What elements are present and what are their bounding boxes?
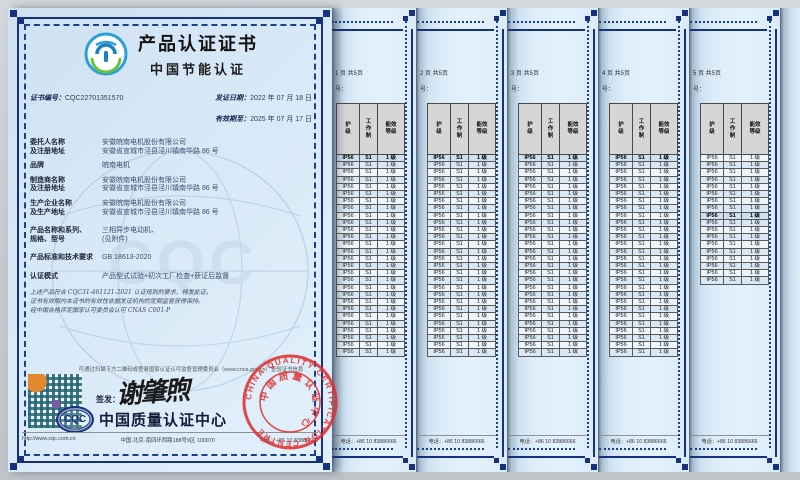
table-cell: S1 [451, 241, 469, 248]
table-row: IP56S11 级 [428, 284, 496, 291]
table-body: IP56S11 级IP56S11 级IP56S11 级IP56S11 级IP56… [519, 155, 587, 357]
corner-square-ornament [676, 458, 681, 463]
table-cell: 1 级 [651, 248, 678, 255]
table-cell: IP56 [428, 306, 451, 313]
table-row: IP56S11 级 [610, 327, 678, 334]
dashed-border-ornament [690, 21, 757, 23]
table-cell: S1 [451, 176, 469, 183]
attachment-page-sliver: 5 页 共5页 号： 护 级 工 作 制 能效 等级 IP56S11 级IP56… [690, 8, 781, 472]
corner-square-ornament [773, 464, 779, 470]
table-row: IP56S11 级 [610, 313, 678, 320]
table-row: IP56S11 级 [337, 342, 405, 349]
corner-square-ornament [19, 456, 24, 461]
table-row: IP56S11 级 [610, 349, 678, 356]
table-cell: S1 [542, 306, 560, 313]
field-value: 安徽皖南电机股份有限公司安徽省宣城市泾县泾川镇南华路 86 号 [102, 177, 219, 194]
table-row: IP56S11 级 [610, 205, 678, 212]
table-cell: IP56 [701, 155, 724, 162]
table-cell: 1 级 [378, 263, 405, 270]
table-row: IP56S11 级 [337, 219, 405, 226]
table-cell: 1 级 [560, 227, 587, 234]
attachment-table: 护 级 工 作 制 能效 等级 IP56S11 级IP56S11 级IP56S1… [427, 103, 496, 357]
table-cell: IP56 [701, 234, 724, 241]
table-row: IP56S11 级 [519, 205, 587, 212]
table-row: IP56S11 级 [337, 320, 405, 327]
table-cell: IP56 [428, 335, 451, 342]
corner-square-ornament [409, 10, 415, 16]
table-row: IP56S11 级 [701, 248, 769, 255]
table-cell: S1 [360, 335, 378, 342]
solid-border-ornament [502, 29, 504, 457]
table-cell: IP56 [610, 284, 633, 291]
solid-border-ornament [599, 29, 676, 31]
table-cell: S1 [451, 277, 469, 284]
corner-square-ornament [409, 464, 415, 470]
table-cell: 1 级 [560, 198, 587, 205]
table-row: IP56S11 级 [337, 255, 405, 262]
field-value: 安徽皖南电机股份有限公司安徽省宣城市泾县泾川镇南华路 86 号 [102, 200, 219, 217]
dashed-border-ornament [508, 21, 575, 23]
table-cell: IP56 [701, 270, 724, 277]
table-cell: S1 [724, 169, 742, 176]
corner-square-ornament [323, 10, 330, 17]
table-cell: 1 级 [651, 320, 678, 327]
table-cell: S1 [451, 169, 469, 176]
table-header-efficiency: 能效 等级 [560, 104, 587, 155]
corner-square-ornament [494, 16, 499, 21]
table-cell: S1 [360, 248, 378, 255]
table-cell: 1 级 [560, 306, 587, 313]
table-cell: IP56 [610, 335, 633, 342]
table-row: IP56S11 级 [337, 270, 405, 277]
table-cell: IP56 [428, 270, 451, 277]
table-cell: S1 [633, 169, 651, 176]
table-row: IP56S11 级 [428, 183, 496, 190]
table-cell: S1 [360, 342, 378, 349]
table-row: IP56S11 级 [337, 198, 405, 205]
table-row: IP56S11 级 [337, 306, 405, 313]
attachment-certno-fragment: 号： [602, 84, 630, 93]
table-cell: IP56 [337, 248, 360, 255]
table-row: IP56S11 级 [610, 227, 678, 234]
table-cell: 1 级 [560, 162, 587, 169]
table-cell: IP56 [519, 176, 542, 183]
table-cell: IP56 [428, 320, 451, 327]
table-cell: IP56 [337, 219, 360, 226]
table-cell: IP56 [428, 291, 451, 298]
corner-square-ornament [767, 16, 772, 21]
table-cell: 1 级 [378, 155, 405, 162]
table-header-efficiency: 能效 等级 [378, 104, 405, 155]
table-row: IP56S11 级 [337, 335, 405, 342]
table-cell: 1 级 [560, 241, 587, 248]
corner-square-ornament [585, 458, 590, 463]
solid-border-ornament [690, 456, 767, 458]
table-row: IP56S11 级 [519, 291, 587, 298]
valid-until-label: 有效期至： [215, 114, 250, 123]
table-row: IP56S11 级 [428, 205, 496, 212]
dashed-border-ornament [587, 21, 589, 448]
table-cell: 1 级 [560, 219, 587, 226]
table-cell: IP56 [701, 255, 724, 262]
table-cell: S1 [542, 155, 560, 162]
table-cell: 1 级 [378, 227, 405, 234]
table-cell: S1 [360, 176, 378, 183]
table-cell: S1 [633, 320, 651, 327]
table-cell: S1 [451, 205, 469, 212]
table-cell: IP56 [610, 219, 633, 226]
corner-square-ornament [591, 464, 597, 470]
field-label: 品牌 [30, 162, 102, 171]
table-cell: S1 [633, 191, 651, 198]
table-cell: IP56 [519, 263, 542, 270]
table-cell: 1 级 [378, 342, 405, 349]
footer-address: 中国·北京·南四环西路188号9区 100070 [120, 436, 214, 444]
table-cell: IP56 [610, 183, 633, 190]
table-cell: S1 [633, 234, 651, 241]
solid-border-ornament [332, 456, 403, 458]
table-cell: IP56 [701, 198, 724, 205]
attachment-page-header: 5 页 共5页 号： [693, 68, 721, 93]
table-cell: 1 级 [469, 284, 496, 291]
table-row: IP56S11 级 [701, 234, 769, 241]
table-cell: S1 [360, 198, 378, 205]
table-cell: IP56 [610, 277, 633, 284]
table-cell: 1 级 [469, 306, 496, 313]
solid-border-ornament [690, 29, 767, 31]
table-cell: S1 [724, 234, 742, 241]
table-cell: S1 [542, 219, 560, 226]
table-cell: IP56 [337, 313, 360, 320]
attachment-footer-phone: 电话：+86 10 83886666 [508, 438, 587, 445]
table-cell: S1 [542, 284, 560, 291]
table-cell: 1 级 [651, 198, 678, 205]
attachment-page-header: 3 页 共5页 号： [511, 68, 539, 93]
table-row: IP56S11 级 [519, 255, 587, 262]
table-cell: IP56 [337, 241, 360, 248]
table-header-protection: 护 级 [519, 104, 542, 155]
table-cell: 1 级 [651, 327, 678, 334]
table-cell: 1 级 [560, 176, 587, 183]
table-cell: IP56 [428, 155, 451, 162]
table-row: IP56S11 级 [428, 255, 496, 262]
table-header-duty: 工 作 制 [724, 104, 742, 155]
table-cell: S1 [542, 291, 560, 298]
table-cell: IP56 [701, 191, 724, 198]
table-cell: IP56 [610, 349, 633, 356]
partial-page-edge [781, 8, 800, 472]
table-cell: 1 级 [651, 291, 678, 298]
certificate-page: CQC 产品认证证书 中国节能认证 证书编号：CQC22701 [8, 8, 332, 472]
table-cell: IP56 [610, 241, 633, 248]
table-cell: IP56 [337, 270, 360, 277]
statement-line: 上述产品符合 CQC31-461121-2021 认证规则的要求，特发此证。 [30, 288, 312, 297]
table-cell: IP56 [337, 327, 360, 334]
table-cell: S1 [633, 349, 651, 356]
table-cell: S1 [451, 327, 469, 334]
table-row: IP56S11 级 [337, 284, 405, 291]
table-cell: S1 [542, 191, 560, 198]
table-cell: 1 级 [469, 234, 496, 241]
corner-square-ornament [591, 10, 597, 16]
attachment-footer: 电话：+86 10 83886666 [332, 435, 405, 445]
table-cell: 1 级 [742, 219, 769, 226]
table-cell: S1 [542, 277, 560, 284]
table-cell: 1 级 [469, 248, 496, 255]
table-cell: IP56 [610, 306, 633, 313]
corner-square-ornament [494, 458, 499, 463]
table-header-protection: 护 级 [337, 104, 360, 155]
table-cell: 1 级 [378, 219, 405, 226]
table-row: IP56S11 级 [519, 299, 587, 306]
issue-date-value: 2022 年 07 月 18 日 [250, 95, 312, 102]
table-cell: IP56 [610, 291, 633, 298]
table-cell: 1 级 [742, 205, 769, 212]
table-cell: 1 级 [378, 162, 405, 169]
table-cell: IP56 [428, 313, 451, 320]
table-cell: S1 [451, 212, 469, 219]
table-cell: IP56 [610, 255, 633, 262]
table-cell: IP56 [428, 299, 451, 306]
table-cell: 1 级 [560, 327, 587, 334]
table-row: IP56S11 级 [519, 320, 587, 327]
attachment-footer-phone: 电话：+86 10 83886666 [417, 438, 496, 445]
statement-line: 经中国合格评定国家认可委员会认可 CNAS C001-P [30, 306, 312, 315]
table-cell: S1 [360, 234, 378, 241]
table-row: IP56S11 级 [337, 155, 405, 162]
table-cell: S1 [360, 241, 378, 248]
table-row: IP56S11 级 [610, 335, 678, 342]
field-value: 产品型式试验+初次工厂检查+获证后监督 [102, 273, 229, 282]
table-cell: S1 [724, 270, 742, 277]
table-cell: 1 级 [651, 241, 678, 248]
table-cell: 1 级 [651, 313, 678, 320]
table-cell: S1 [633, 335, 651, 342]
table-cell: IP56 [519, 299, 542, 306]
table-cell: IP56 [337, 342, 360, 349]
table-row: IP56S11 级 [337, 234, 405, 241]
table-cell: IP56 [519, 284, 542, 291]
table-cell: S1 [542, 320, 560, 327]
table-cell: S1 [633, 176, 651, 183]
dashed-border-ornament [678, 21, 680, 448]
table-cell: IP56 [519, 205, 542, 212]
table-cell: 1 级 [469, 291, 496, 298]
table-cell: S1 [360, 327, 378, 334]
table-row: IP56S11 级 [519, 176, 587, 183]
table-cell: 1 级 [378, 299, 405, 306]
table-row: IP56S11 级 [701, 191, 769, 198]
field-row: 认证模式 产品型式试验+初次工厂检查+获证后监督 [30, 273, 312, 282]
field-value: 皖南电机 [102, 162, 130, 171]
table-row: IP56S11 级 [519, 155, 587, 162]
table-cell: IP56 [610, 162, 633, 169]
table-cell: 1 级 [742, 270, 769, 277]
field-label: 委托人名称及注册地址 [30, 139, 102, 156]
table-row: IP56S11 级 [610, 241, 678, 248]
table-cell: IP56 [519, 291, 542, 298]
table-row: IP56S11 级 [337, 227, 405, 234]
table-row: IP56S11 级 [701, 227, 769, 234]
table-cell: S1 [542, 198, 560, 205]
table-cell: 1 级 [378, 306, 405, 313]
attachment-page-sliver: 1 页 共5页 号： 护 级 工 作 制 能效 等级 IP56S11 级IP56… [332, 8, 417, 472]
table-row: IP56S11 级 [610, 155, 678, 162]
table-row: IP56S11 级 [610, 176, 678, 183]
solid-border-ornament [417, 456, 494, 458]
table-cell: 1 级 [469, 277, 496, 284]
table-cell: S1 [451, 183, 469, 190]
table-cell: IP56 [701, 212, 724, 219]
table-cell: S1 [542, 342, 560, 349]
table-row: IP56S11 级 [519, 227, 587, 234]
field-row: 委托人名称及注册地址 安徽皖南电机股份有限公司安徽省宣城市泾县泾川镇南华路 86… [30, 139, 312, 156]
table-row: IP56S11 级 [519, 263, 587, 270]
table-cell: IP56 [337, 291, 360, 298]
table-cell: S1 [724, 227, 742, 234]
table-row: IP56S11 级 [428, 162, 496, 169]
table-row: IP56S11 级 [428, 277, 496, 284]
attachment-page-number: 2 页 共5页 [420, 68, 448, 77]
certificate-subtitle: 中国节能认证 [138, 59, 258, 78]
table-row: IP56S11 级 [337, 327, 405, 334]
table-cell: S1 [360, 219, 378, 226]
table-cell: S1 [724, 212, 742, 219]
table-cell: 1 级 [651, 212, 678, 219]
corner-square-ornament [10, 463, 17, 470]
corner-square-ornament [767, 458, 772, 463]
corner-square-ornament [323, 463, 330, 470]
table-row: IP56S11 级 [428, 327, 496, 334]
table-cell: 1 级 [469, 162, 496, 169]
table-cell: IP56 [519, 270, 542, 277]
table-cell: S1 [724, 198, 742, 205]
table-cell: 1 级 [742, 198, 769, 205]
table-cell: IP56 [428, 342, 451, 349]
table-cell: IP56 [519, 327, 542, 334]
table-row: IP56S11 级 [519, 327, 587, 334]
table-cell: IP56 [519, 320, 542, 327]
table-cell: IP56 [519, 234, 542, 241]
dashed-border-ornament [332, 21, 393, 23]
table-cell: S1 [451, 349, 469, 356]
table-row: IP56S11 级 [519, 241, 587, 248]
table-row: IP56S11 级 [428, 155, 496, 162]
attachment-page-sliver: 3 页 共5页 号： 护 级 工 作 制 能效 等级 IP56S11 级IP56… [508, 8, 599, 472]
table-cell: S1 [633, 291, 651, 298]
table-cell: S1 [451, 162, 469, 169]
corner-square-ornament [19, 19, 24, 24]
table-row: IP56S11 级 [610, 306, 678, 313]
table-row: IP56S11 级 [337, 183, 405, 190]
table-cell: IP56 [610, 234, 633, 241]
table-row: IP56S11 级 [610, 183, 678, 190]
field-label: 产品名称和系列、规格、型号 [30, 227, 102, 244]
table-cell: 1 级 [651, 270, 678, 277]
table-cell: S1 [633, 284, 651, 291]
attachment-footer: 电话：+86 10 83886666 [417, 435, 496, 445]
attachment-footer: 电话：+86 10 83886666 [690, 435, 769, 445]
table-cell: S1 [360, 205, 378, 212]
field-row: 制造商名称及注册地址 安徽皖南电机股份有限公司安徽省宣城市泾县泾川镇南华路 86… [30, 177, 312, 194]
table-row: IP56S11 级 [428, 349, 496, 356]
table-row: IP56S11 级 [428, 169, 496, 176]
cqc-logo-icon: CQC [56, 406, 94, 433]
table-cell: 1 级 [378, 212, 405, 219]
table-body: IP56S11 级IP56S11 级IP56S11 级IP56S11 级IP56… [337, 155, 405, 357]
certificate-titles: 产品认证证书 中国节能认证 [138, 30, 258, 78]
table-row: IP56S11 级 [610, 291, 678, 298]
table-cell: S1 [451, 291, 469, 298]
table-cell: S1 [542, 205, 560, 212]
table-cell: S1 [451, 284, 469, 291]
table-cell: IP56 [337, 255, 360, 262]
table-cell: 1 级 [742, 234, 769, 241]
table-cell: 1 级 [742, 191, 769, 198]
table-cell: IP56 [519, 183, 542, 190]
table-cell: IP56 [519, 349, 542, 356]
table-cell: 1 级 [560, 270, 587, 277]
table-row: IP56S11 级 [519, 248, 587, 255]
table-cell: 1 级 [378, 234, 405, 241]
table-cell: 1 级 [742, 248, 769, 255]
fields: 委托人名称及注册地址 安徽皖南电机股份有限公司安徽省宣城市泾县泾川镇南华路 86… [30, 139, 312, 282]
corner-square-ornament [773, 10, 779, 16]
table-cell: S1 [360, 299, 378, 306]
field-label: 制造商名称及注册地址 [30, 177, 102, 194]
table-cell: IP56 [428, 219, 451, 226]
table-cell: 1 级 [651, 306, 678, 313]
table-cell: IP56 [610, 248, 633, 255]
table-cell: 1 级 [560, 183, 587, 190]
table-cell: 1 级 [742, 241, 769, 248]
table-cell: S1 [542, 270, 560, 277]
table-cell: 1 级 [378, 327, 405, 334]
table-cell: S1 [724, 219, 742, 226]
table-cell: 1 级 [469, 191, 496, 198]
table-cell: S1 [542, 299, 560, 306]
table-row: IP56S11 级 [610, 234, 678, 241]
valid-until-value: 2025 年 07 月 17 日 [250, 116, 312, 123]
certificate-number: 证书编号：CQC22701351570 [30, 87, 123, 129]
attachment-table: 护 级 工 作 制 能效 等级 IP56S11 级IP56S11 级IP56S1… [700, 103, 769, 285]
table-cell: S1 [360, 263, 378, 270]
table-cell: 1 级 [378, 291, 405, 298]
table-header-efficiency: 能效 等级 [742, 104, 769, 155]
table-cell: S1 [542, 227, 560, 234]
table-cell: S1 [360, 291, 378, 298]
table-cell: S1 [633, 299, 651, 306]
table-row: IP56S11 级 [337, 313, 405, 320]
table-cell: 1 级 [378, 191, 405, 198]
table-cell: 1 级 [378, 270, 405, 277]
table-cell: 1 级 [469, 227, 496, 234]
table-row: IP56S11 级 [428, 198, 496, 205]
solid-border-ornament [332, 29, 403, 31]
table-cell: IP56 [701, 183, 724, 190]
table-cell: S1 [633, 198, 651, 205]
table-cell: S1 [360, 169, 378, 176]
table-row: IP56S11 级 [428, 313, 496, 320]
valid-until-row: 有效期至：2025 年 07 月 17 日 [215, 108, 312, 126]
attachment-footer: 电话：+86 10 83886666 [599, 435, 678, 445]
solid-border-ornament [775, 29, 777, 457]
table-cell: 1 级 [378, 313, 405, 320]
table-cell: 1 级 [651, 335, 678, 342]
table-cell: S1 [542, 313, 560, 320]
table-cell: IP56 [701, 277, 724, 284]
table-cell: 1 级 [378, 205, 405, 212]
